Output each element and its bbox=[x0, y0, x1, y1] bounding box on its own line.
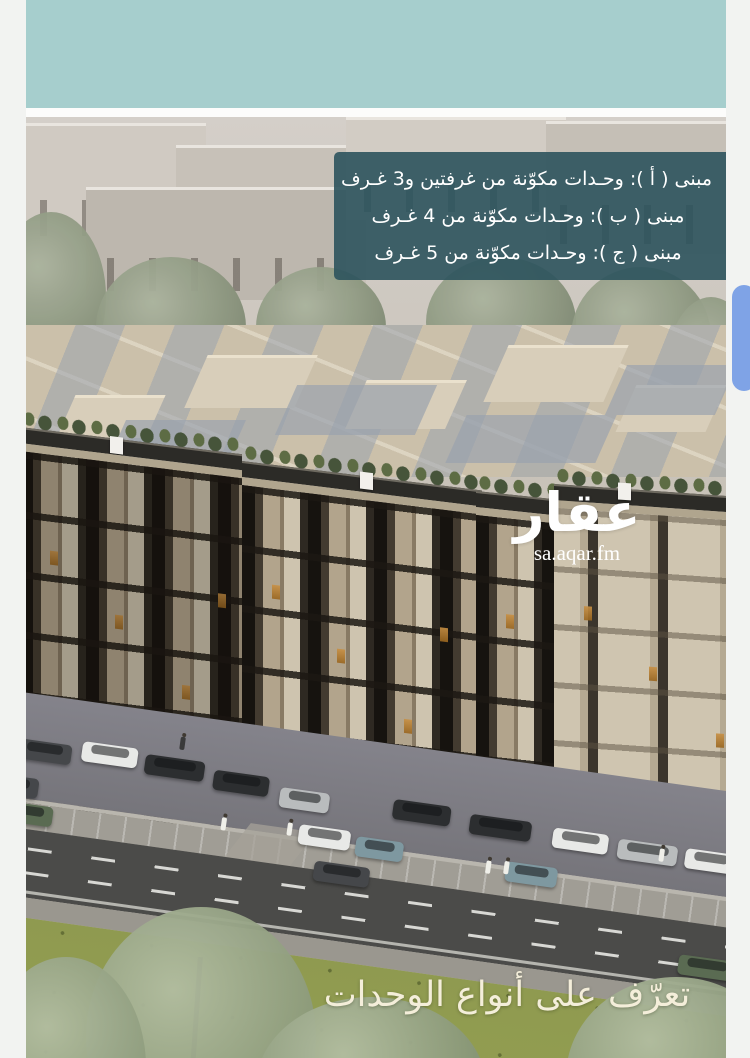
info-line-building-a: مبنى ( أ ): وحـدات مكوّنة من غرفتين و3 غ… bbox=[344, 163, 712, 195]
aqar-watermark: عقار sa.aqar.fm bbox=[504, 485, 650, 565]
property-rendering: عقار sa.aqar.fm تعرّف على أنواع الوحدات … bbox=[26, 117, 726, 1058]
divider-strip bbox=[26, 108, 726, 117]
header-color-band bbox=[26, 0, 726, 108]
building-logo-plaque bbox=[360, 471, 373, 490]
roof-parapet bbox=[483, 345, 628, 402]
aqar-domain-text: sa.aqar.fm bbox=[504, 541, 650, 565]
info-line-building-b: مبنى ( ب ): وحـدات مكوّنة من 4 غـرف bbox=[344, 200, 712, 232]
roof-panel bbox=[275, 385, 437, 435]
listing-image-page: عقار sa.aqar.fm تعرّف على أنواع الوحدات … bbox=[0, 0, 750, 1058]
building-types-info-box: مبنى ( أ ): وحـدات مكوّنة من غرفتين و3 غ… bbox=[334, 152, 726, 280]
caption-title: تعرّف على أنواع الوحدات bbox=[296, 975, 718, 1015]
scrollbar-thumb[interactable] bbox=[732, 285, 750, 391]
roof-panel bbox=[445, 415, 616, 463]
building-logo-plaque bbox=[110, 436, 123, 455]
info-line-building-c: مبنى ( ج ): وحـدات مكوّنة من 5 غـرف bbox=[344, 237, 712, 269]
aqar-logo-text: عقار bbox=[504, 485, 650, 541]
roof-panel bbox=[605, 365, 726, 415]
